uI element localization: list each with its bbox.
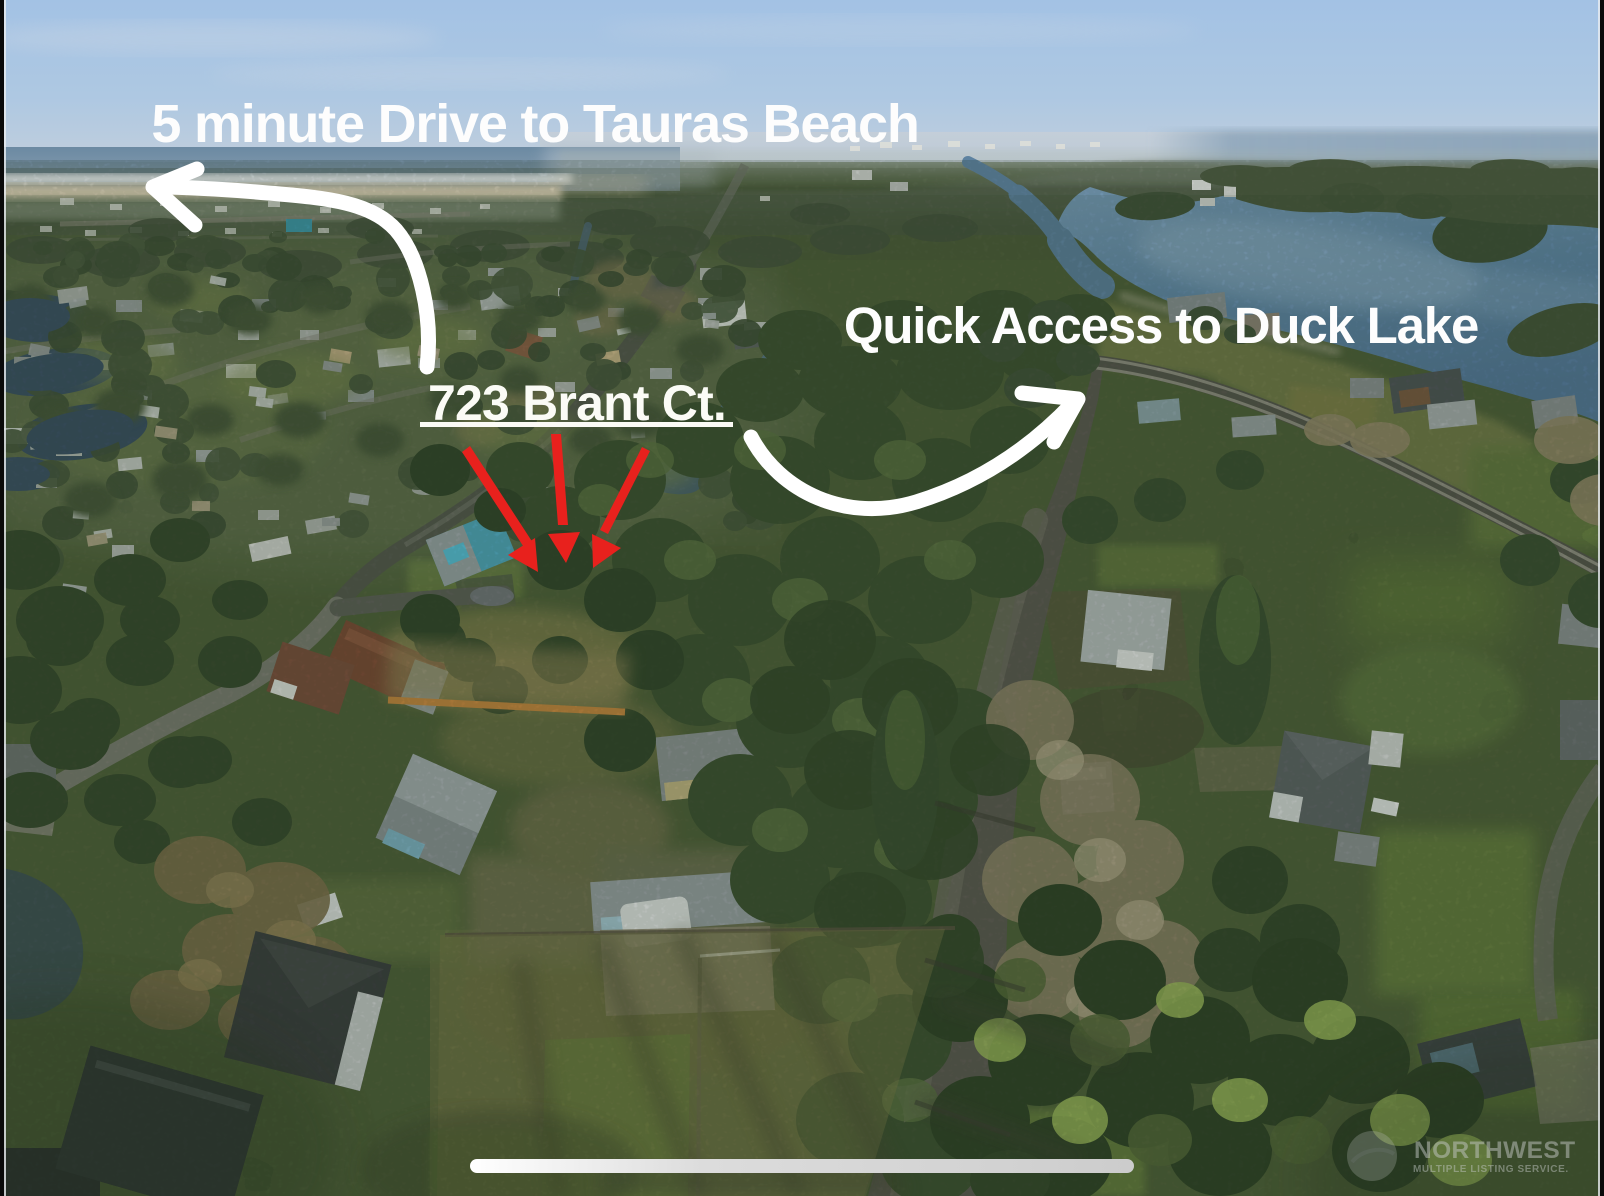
- svg-text:Quick Access to Duck Lake: Quick Access to Duck Lake: [844, 297, 1478, 354]
- svg-text:MULTIPLE LISTING SERVICE.: MULTIPLE LISTING SERVICE.: [1413, 1164, 1569, 1175]
- svg-text:5 minute Drive to Tauras Beach: 5 minute Drive to Tauras Beach: [151, 94, 918, 154]
- svg-text:NORTHWEST: NORTHWEST: [1414, 1137, 1575, 1164]
